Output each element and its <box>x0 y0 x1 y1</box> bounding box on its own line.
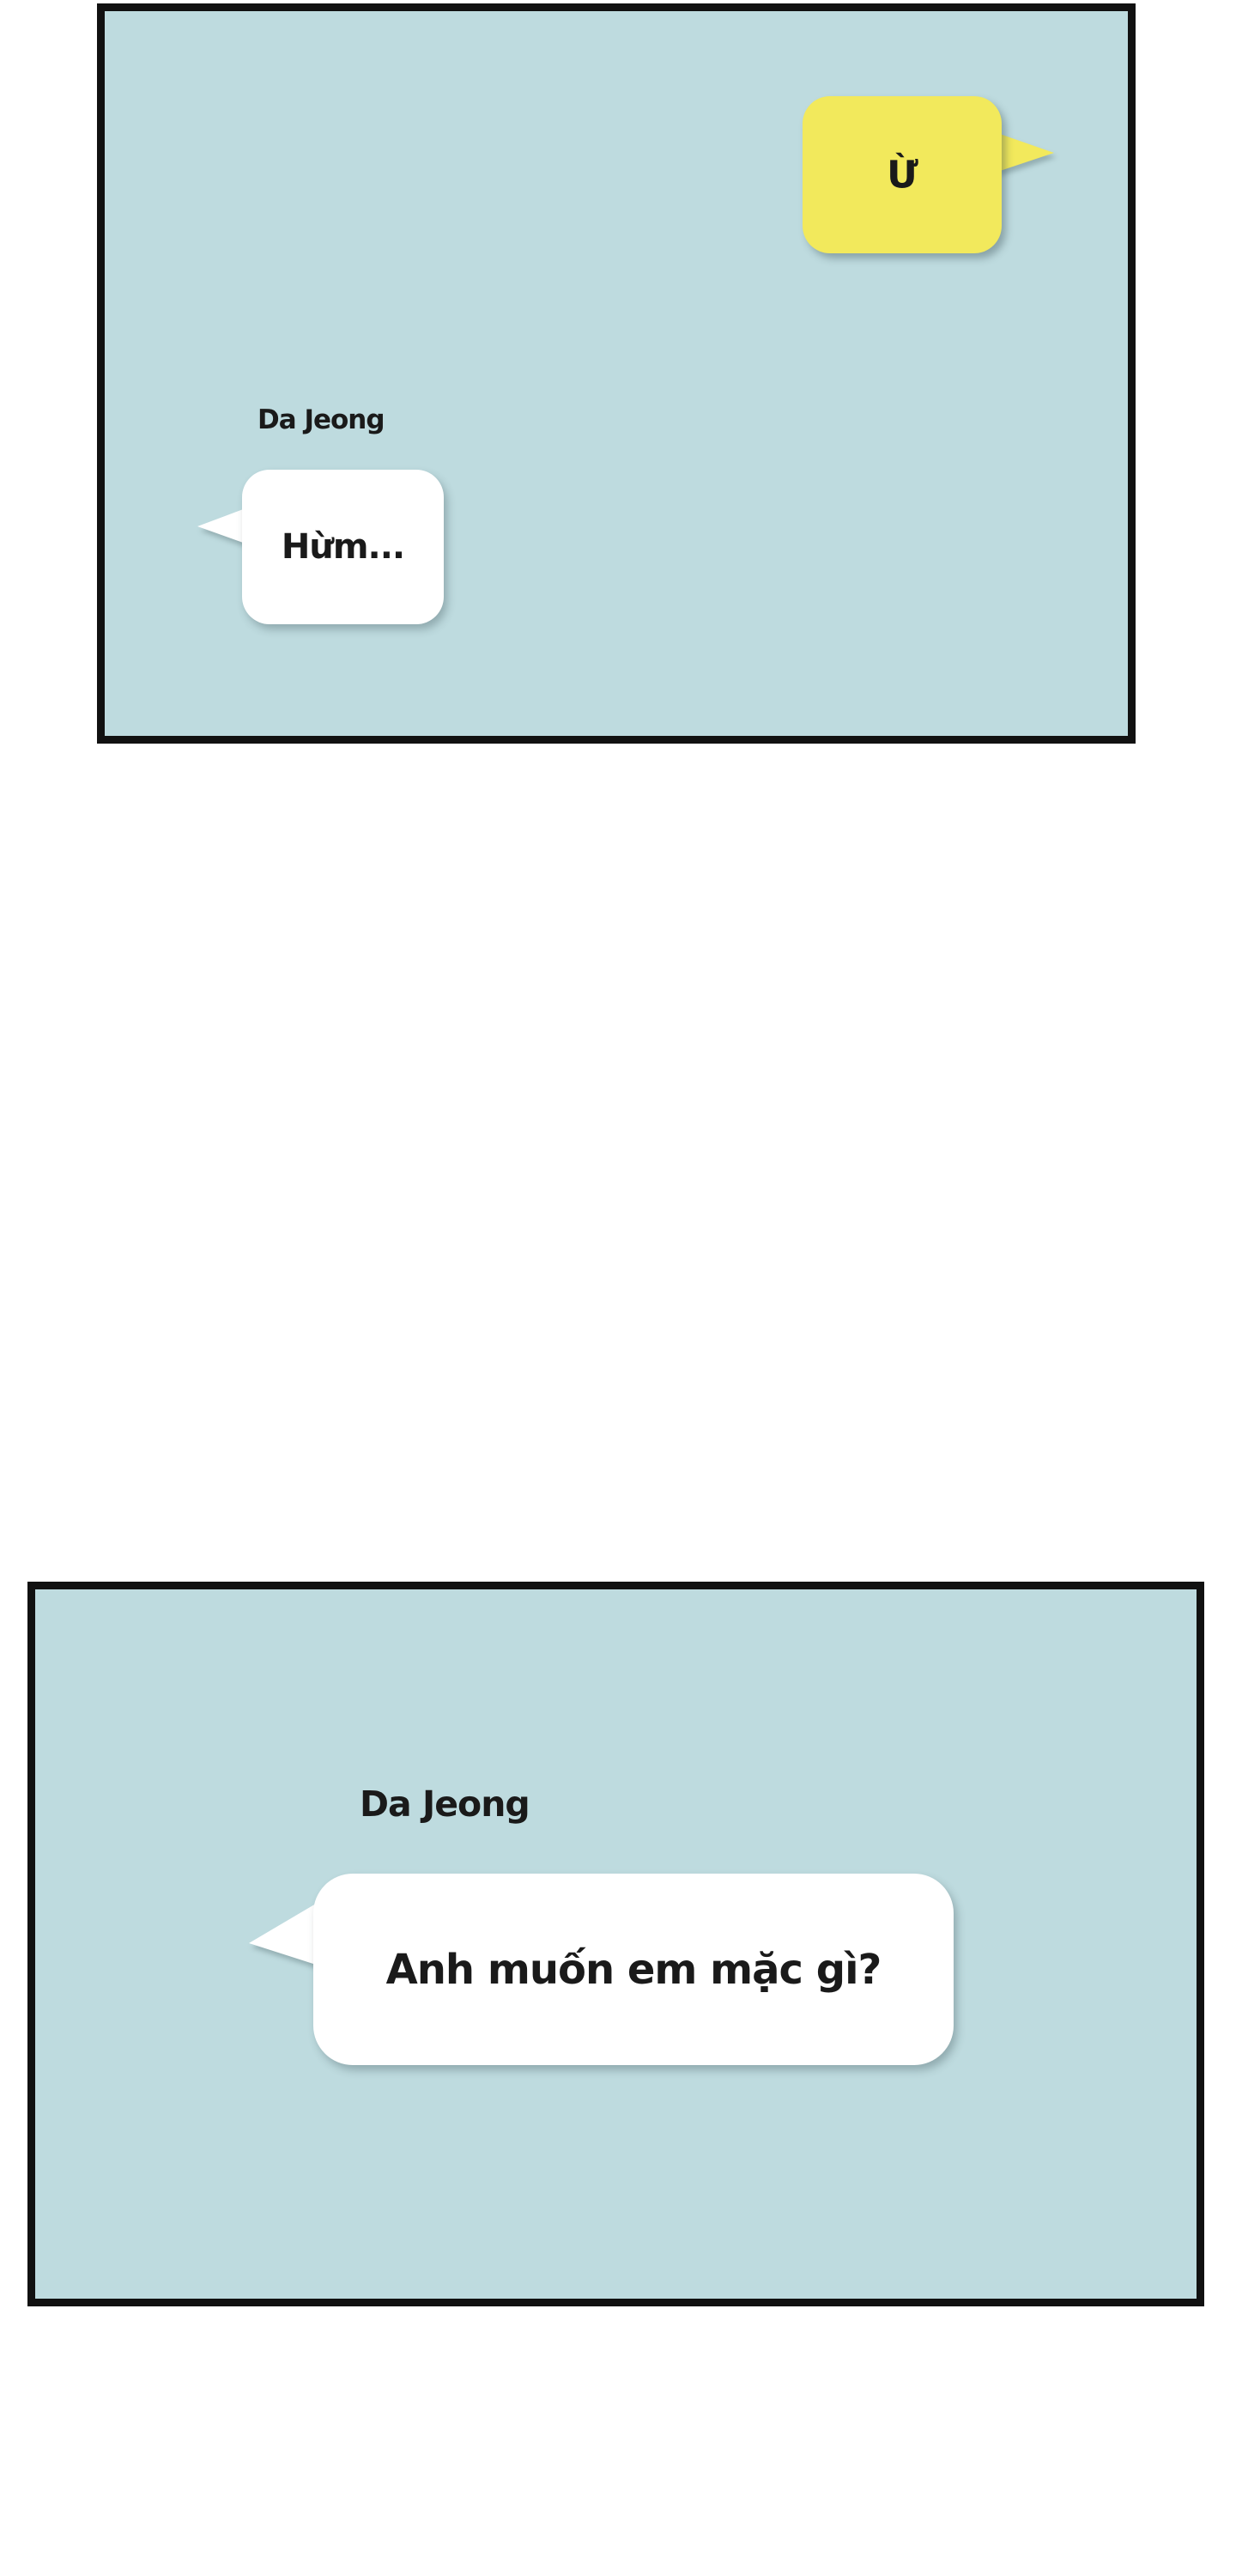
speech-bubble-receiver: Hừm... <box>242 470 444 624</box>
speaker-label: Da Jeong <box>257 404 385 435</box>
webtoon-page: Ừ Da Jeong Hừm... Da Jeong Anh muốn em m… <box>0 0 1236 2576</box>
speech-text-receiver: Hừm... <box>282 527 404 567</box>
bubble-tail-right-icon <box>997 127 1059 180</box>
speech-bubble-sender: Ừ <box>803 96 1002 253</box>
bubble-tail-left-icon <box>194 501 247 549</box>
speech-bubble-receiver: Anh muốn em mặc gì? <box>313 1874 954 2065</box>
speech-text-receiver: Anh muốn em mặc gì? <box>386 1946 882 1994</box>
comic-panel-top: Ừ Da Jeong Hừm... <box>97 3 1136 744</box>
bubble-tail-left-icon <box>245 1897 318 1971</box>
comic-panel-bottom: Da Jeong Anh muốn em mặc gì? <box>27 1582 1204 2306</box>
speaker-label: Da Jeong <box>360 1783 530 1825</box>
speech-text-sender: Ừ <box>887 153 918 197</box>
